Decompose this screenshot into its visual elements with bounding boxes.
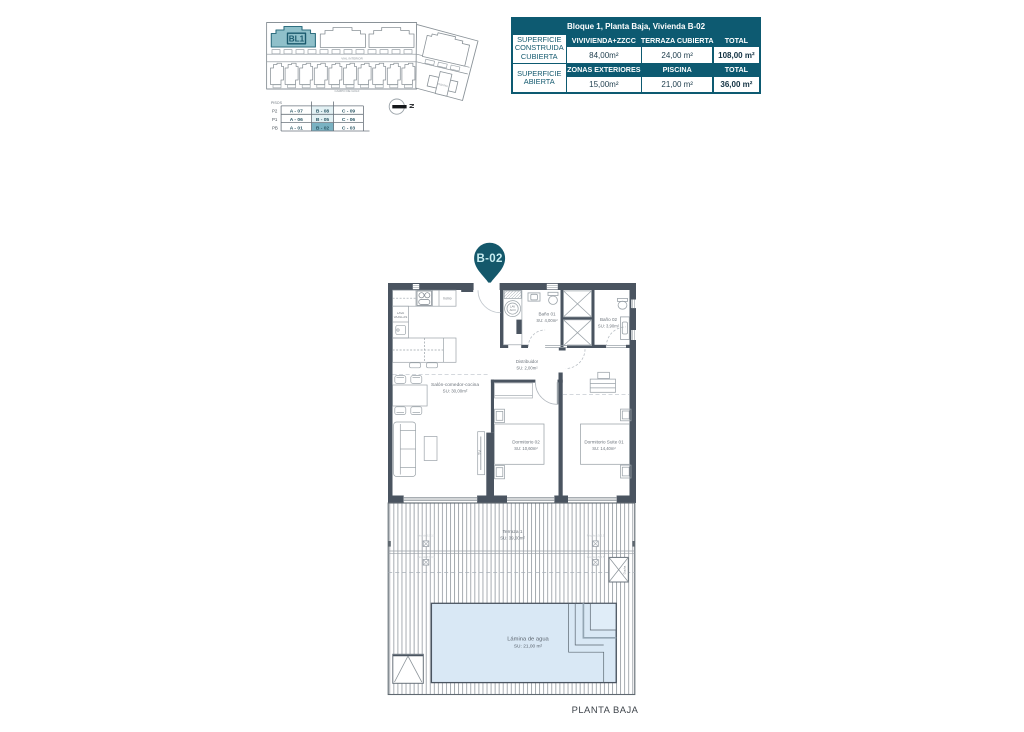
svg-text:CAMPO DE GOLF: CAMPO DE GOLF	[334, 89, 359, 93]
svg-text:SU: 30,00m²: SU: 30,00m²	[443, 389, 468, 394]
svg-text:A - 06: A - 06	[290, 117, 303, 123]
svg-text:Dormitorio Suite 01: Dormitorio Suite 01	[584, 440, 624, 445]
svg-text:Pérgola 3,5x3,5: Pérgola 3,5x3,5	[417, 556, 435, 559]
svg-text:PISOS: PISOS	[271, 101, 283, 105]
svg-text:Ducha: Ducha	[623, 565, 627, 574]
svg-text:ACO: ACO	[510, 308, 517, 312]
svg-text:SU: 10,60m²: SU: 10,60m²	[514, 446, 538, 451]
svg-text:SU: 39,00m²: SU: 39,00m²	[500, 536, 525, 541]
svg-text:Baño 02: Baño 02	[600, 317, 618, 322]
svg-text:P2: P2	[272, 109, 278, 114]
svg-text:TV: TV	[477, 450, 482, 455]
svg-text:PLANTA BAJA: PLANTA BAJA	[572, 704, 639, 715]
svg-text:Lámina de agua: Lámina de agua	[507, 637, 549, 643]
svg-text:N: N	[407, 104, 414, 109]
svg-text:C - 06: C - 06	[342, 117, 356, 123]
svg-text:P1: P1	[272, 117, 278, 122]
svg-text:B - 08: B - 08	[316, 109, 330, 115]
svg-text:SU: 21,00 m²: SU: 21,00 m²	[514, 644, 543, 650]
svg-text:Pérgola 3,5x3,5: Pérgola 3,5x3,5	[587, 556, 605, 559]
svg-text:PB: PB	[272, 125, 278, 130]
svg-text:Distribuidor: Distribuidor	[516, 359, 539, 364]
svg-text:VAJILLAS: VAJILLAS	[394, 315, 407, 319]
svg-text:Baño 01: Baño 01	[538, 311, 556, 316]
svg-text:horno: horno	[443, 297, 451, 301]
svg-text:SU: 14,40m²: SU: 14,40m²	[592, 446, 616, 451]
svg-text:SU: 4,00m²: SU: 4,00m²	[536, 318, 558, 323]
svg-text:SU: 3,90m²: SU: 3,90m²	[598, 324, 620, 329]
svg-text:SU: 2,00m²: SU: 2,00m²	[516, 366, 538, 371]
svg-text:B - 02: B - 02	[316, 125, 330, 131]
svg-text:A - 01: A - 01	[290, 125, 303, 131]
svg-text:Salón-comedor-cocina: Salón-comedor-cocina	[431, 382, 479, 388]
svg-text:B - 05: B - 05	[316, 117, 330, 123]
svg-text:C - 03: C - 03	[342, 125, 356, 131]
svg-text:Pérgola 3,5x3,5: Pérgola 3,5x3,5	[417, 535, 435, 538]
svg-text:BL1: BL1	[289, 35, 305, 44]
svg-text:VIAL INTERIOR: VIAL INTERIOR	[341, 56, 363, 60]
svg-text:C - 09: C - 09	[342, 109, 356, 115]
svg-text:B-02: B-02	[477, 253, 503, 265]
svg-text:Dormitorio 02: Dormitorio 02	[512, 440, 540, 445]
svg-text:A - 07: A - 07	[290, 109, 303, 115]
svg-text:Pérgola 3,5x3,5: Pérgola 3,5x3,5	[587, 535, 605, 538]
svg-text:Terraza 1: Terraza 1	[503, 529, 523, 535]
